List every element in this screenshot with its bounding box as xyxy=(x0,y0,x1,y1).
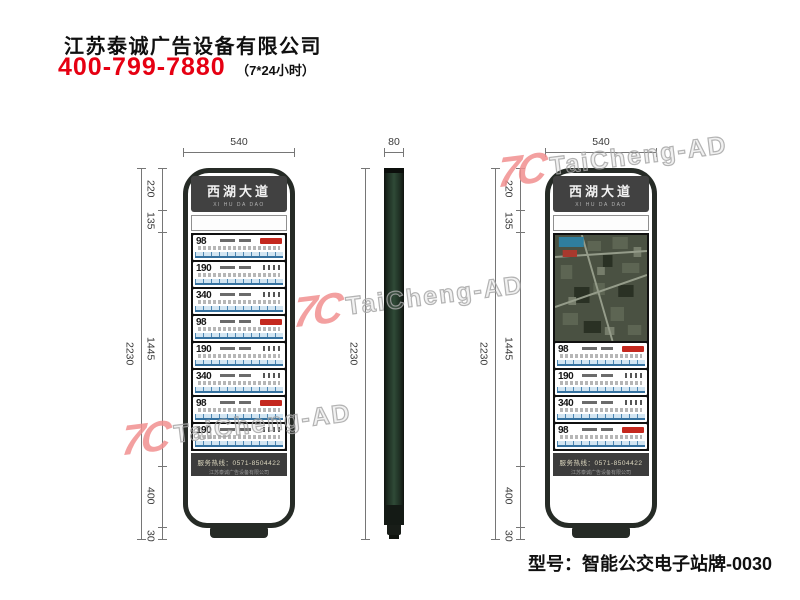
dim-tick xyxy=(516,527,525,528)
route-strip: 190 xyxy=(193,262,285,287)
model-label: 型号：智能公交电子站牌-0030 xyxy=(528,550,772,576)
dim-segment-label: 400 xyxy=(502,474,515,518)
route-stations-text xyxy=(560,408,642,412)
route-info-bar xyxy=(239,239,251,242)
route-info-bar xyxy=(239,320,251,323)
route-strip: 340 xyxy=(193,289,285,314)
blank-panel xyxy=(191,215,287,231)
route-info-bar xyxy=(239,428,251,431)
route-line xyxy=(195,279,283,285)
station-header: 西湖大道 XI HU DA DAO xyxy=(191,176,287,212)
dim-line-height-side xyxy=(361,168,370,540)
route-strip: 98 xyxy=(193,397,285,422)
route-stop-dots xyxy=(263,292,281,297)
phone-number: 400-799-7880 xyxy=(58,53,226,81)
phone-row: 400-799-7880 （7*24小时） xyxy=(58,53,315,82)
station-pinyin: XI HU DA DAO xyxy=(553,202,649,208)
sign-base xyxy=(572,528,630,538)
route-strip: 340 xyxy=(193,370,285,395)
service-info-band: 服务热线：0571-8504422 江苏泰诚广告设备有限公司 xyxy=(553,453,649,476)
route-red-label xyxy=(622,346,644,352)
route-info-bar xyxy=(220,266,235,269)
dim-width-side: 80 xyxy=(380,136,408,148)
dim-segment-label: 1445 xyxy=(144,327,157,371)
route-red-label xyxy=(622,427,644,433)
route-line xyxy=(195,333,283,339)
route-info-bar xyxy=(220,347,235,350)
route-stations-text xyxy=(560,381,642,385)
route-info-bar xyxy=(601,428,613,431)
dim-width-map: 540 xyxy=(586,136,616,148)
route-stations-text xyxy=(198,327,280,331)
route-stop-dots xyxy=(263,427,281,432)
route-strip: 190 xyxy=(193,343,285,368)
dim-segment-label: 30 xyxy=(144,514,157,558)
spec-sheet: 江苏泰诚广告设备有限公司 400-799-7880 （7*24小时） 540 2… xyxy=(0,0,800,600)
dim-line-height-map xyxy=(491,168,500,540)
route-line xyxy=(195,252,283,258)
station-name: 西湖大道 xyxy=(191,181,287,200)
dim-chain-front xyxy=(158,168,167,540)
station-header: 西湖大道 XI HU DA DAO xyxy=(553,176,649,212)
route-stop-dots xyxy=(625,400,643,405)
side-foot xyxy=(387,525,401,535)
route-stop-dots xyxy=(625,373,643,378)
route-info-bar xyxy=(239,347,251,350)
route-strip: 190 xyxy=(555,370,647,395)
route-info-bar xyxy=(239,374,251,377)
route-info-bar xyxy=(220,401,235,404)
bus-sign-map-view: 西湖大道 XI HU DA DAO xyxy=(545,168,657,528)
route-display-area: 98 190 340 xyxy=(553,233,649,451)
route-strip: 190 xyxy=(193,424,285,449)
route-line xyxy=(195,414,283,420)
dim-segment-label: 135 xyxy=(502,199,515,243)
dim-line-width-side xyxy=(384,148,404,157)
station-pinyin: XI HU DA DAO xyxy=(191,202,287,208)
route-line xyxy=(557,360,645,366)
route-line xyxy=(557,414,645,420)
route-strip: 98 xyxy=(555,424,647,449)
phone-hours: （7*24小时） xyxy=(236,63,315,78)
sign-base xyxy=(210,528,268,538)
bus-sign-front-view: 西湖大道 XI HU DA DAO 98 190 xyxy=(183,168,295,528)
route-display-area: 98 190 340 xyxy=(191,233,287,451)
route-stations-text xyxy=(198,246,280,250)
route-info-bar xyxy=(239,293,251,296)
route-strip: 98 xyxy=(555,343,647,368)
service-company: 江苏泰诚广告设备有限公司 xyxy=(191,469,287,476)
service-company: 江苏泰诚广告设备有限公司 xyxy=(553,469,649,476)
route-strip: 340 xyxy=(555,397,647,422)
satellite-map xyxy=(555,235,647,341)
route-stations-text xyxy=(198,273,280,277)
route-stop-dots xyxy=(263,373,281,378)
route-strip: 98 xyxy=(193,316,285,341)
dim-tick xyxy=(158,466,167,467)
route-info-bar xyxy=(601,374,613,377)
route-strips: 98 190 340 xyxy=(193,235,285,449)
route-red-label xyxy=(260,319,282,325)
dim-tick xyxy=(516,466,525,467)
route-info-bar xyxy=(220,293,235,296)
route-info-bar xyxy=(220,320,235,323)
dim-segment-label: 135 xyxy=(144,199,157,243)
dim-tick xyxy=(158,210,167,211)
service-info-band: 服务热线：0571-8504422 江苏泰诚广告设备有限公司 xyxy=(191,453,287,476)
route-line xyxy=(195,306,283,312)
station-name: 西湖大道 xyxy=(553,181,649,200)
sign-side-view xyxy=(384,168,404,525)
side-top-cap xyxy=(384,168,404,173)
route-stations-text xyxy=(560,354,642,358)
route-line xyxy=(195,441,283,447)
dim-segment-label: 1445 xyxy=(502,327,515,371)
route-stations-text xyxy=(198,354,280,358)
route-info-bar xyxy=(220,239,235,242)
route-info-bar xyxy=(582,401,597,404)
route-line xyxy=(195,387,283,393)
route-stop-dots xyxy=(263,265,281,270)
route-strip: 98 xyxy=(193,235,285,260)
route-info-bar xyxy=(582,374,597,377)
route-line xyxy=(557,387,645,393)
service-hotline: 服务热线：0571-8504422 xyxy=(191,457,287,467)
route-stations-text xyxy=(198,381,280,385)
route-info-bar xyxy=(239,401,251,404)
route-info-bar xyxy=(582,347,597,350)
route-stations-text xyxy=(198,435,280,439)
dim-line-width-front xyxy=(183,148,295,157)
route-red-label xyxy=(260,400,282,406)
side-lower-section xyxy=(384,505,404,525)
route-strips: 98 190 340 xyxy=(555,343,647,449)
dim-segment-label: 30 xyxy=(502,514,515,558)
dim-chain-map xyxy=(516,168,525,540)
route-red-label xyxy=(260,238,282,244)
dim-line-width-map xyxy=(545,148,657,157)
route-stations-text xyxy=(198,300,280,304)
dim-tick xyxy=(516,232,525,233)
route-stations-text xyxy=(198,408,280,412)
dim-height-side: 2230 xyxy=(347,332,360,376)
route-info-bar xyxy=(220,428,235,431)
route-line xyxy=(195,360,283,366)
satellite-map-image xyxy=(555,235,647,341)
route-info-bar xyxy=(239,266,251,269)
dim-width-front: 540 xyxy=(224,136,254,148)
route-info-bar xyxy=(220,374,235,377)
dim-height-map: 2230 xyxy=(477,332,490,376)
blank-panel xyxy=(553,215,649,231)
route-line xyxy=(557,441,645,447)
route-info-bar xyxy=(601,347,613,350)
dim-height-front: 2230 xyxy=(123,332,136,376)
dim-tick xyxy=(158,232,167,233)
dim-tick xyxy=(516,210,525,211)
route-stop-dots xyxy=(263,346,281,351)
route-info-bar xyxy=(582,428,597,431)
dim-segment-label: 400 xyxy=(144,474,157,518)
side-base-nub xyxy=(389,535,399,539)
dim-tick xyxy=(158,527,167,528)
service-hotline: 服务热线：0571-8504422 xyxy=(553,457,649,467)
route-info-bar xyxy=(601,401,613,404)
route-stations-text xyxy=(560,435,642,439)
taicheng-logo-icon: 7C xyxy=(292,286,341,334)
